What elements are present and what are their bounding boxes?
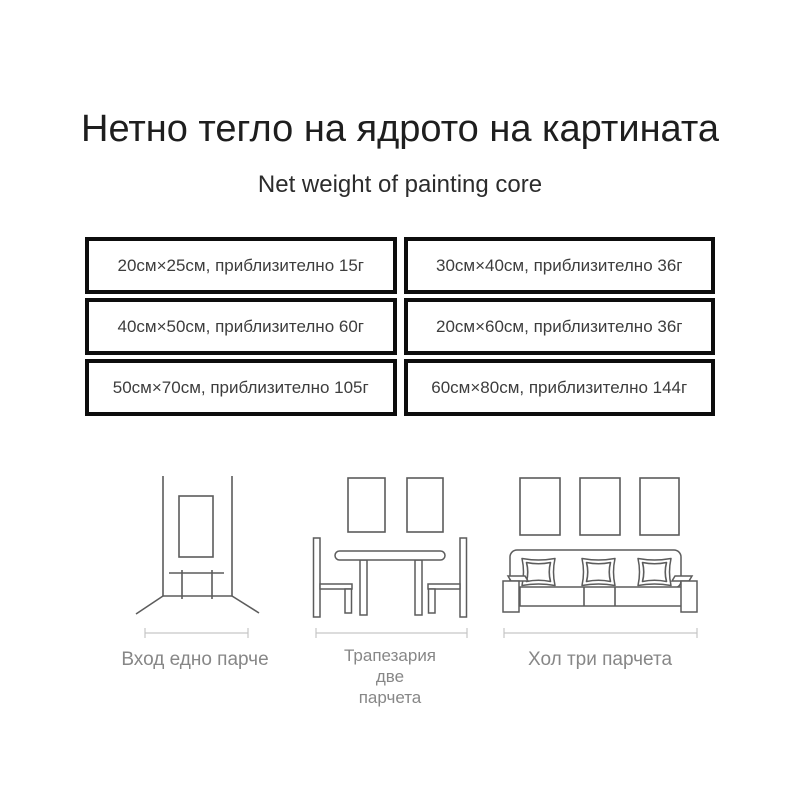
chair-right: [428, 538, 467, 617]
table-cell: 40см×50см, приблизително 60г: [85, 298, 397, 355]
painting-frame: [580, 478, 620, 535]
console-table: [169, 570, 224, 599]
weight-table: 20см×25см, приблизително 15г 30см×40см, …: [85, 237, 715, 416]
sofa: [503, 550, 697, 612]
entrance-illustration-icon: [120, 470, 270, 645]
dimension-line: [504, 628, 697, 638]
table-cell: 60см×80см, приблизително 144г: [404, 359, 716, 416]
table-cell: 20см×25см, приблизително 15г: [85, 237, 397, 294]
page-title: Нетно тегло на ядрото на картината: [0, 108, 800, 151]
dining-label-line: Трапезария: [305, 645, 475, 666]
entrance-figure-label: Вход едно парче: [120, 649, 270, 671]
painting-frame: [407, 478, 443, 532]
dimension-line: [316, 628, 467, 638]
table-cell: 30см×40см, приблизително 36г: [404, 237, 716, 294]
table-cell: 20см×60см, приблизително 36г: [404, 298, 716, 355]
product-infographic-page: Нетно тегло на ядрото на картината Net w…: [0, 0, 800, 800]
living-figure: Хол три парчета: [495, 470, 705, 671]
living-illustration-icon: [495, 470, 705, 645]
dining-figure-label: Трапезария две парчета: [305, 645, 475, 708]
painting-frame: [520, 478, 560, 535]
sofa-pillow: [582, 559, 615, 586]
sofa-pillow: [638, 559, 671, 586]
page-subtitle: Net weight of painting core: [0, 171, 800, 199]
painting-frame: [348, 478, 385, 532]
armrest-right: [681, 581, 697, 612]
dining-illustration-icon: [305, 470, 475, 645]
painting-frame: [640, 478, 679, 535]
living-figure-label: Хол три парчета: [495, 649, 705, 671]
dimension-line: [145, 628, 248, 638]
dining-label-line: две: [305, 666, 475, 687]
armrest-left: [503, 581, 519, 612]
chair-left: [314, 538, 353, 617]
dining-figure: Трапезария две парчета: [305, 470, 475, 708]
entrance-figure: Вход едно парче: [120, 470, 270, 671]
painting-frame: [179, 496, 213, 557]
dining-label-line: парчета: [305, 687, 475, 708]
table-cell: 50см×70см, приблизително 105г: [85, 359, 397, 416]
